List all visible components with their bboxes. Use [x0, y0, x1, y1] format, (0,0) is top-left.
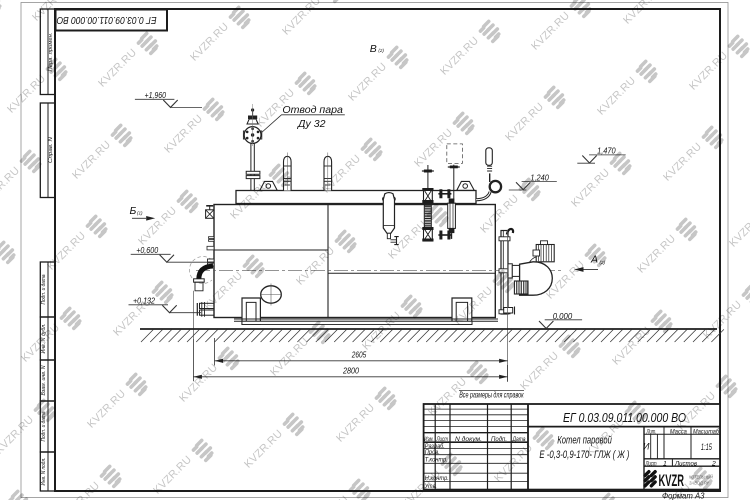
svg-text:2: 2 — [711, 460, 716, 467]
svg-text:Б: Б — [130, 205, 137, 217]
svg-text:N докум.: N докум. — [455, 435, 482, 443]
svg-text:Взам. инв. N: Взам. инв. N — [41, 365, 47, 396]
svg-text:Листов: Листов — [674, 460, 697, 467]
svg-text:Все размеры для справок: Все размеры для справок — [459, 391, 524, 400]
svg-text:1: 1 — [663, 460, 667, 467]
svg-text:Подп. и дата: Подп. и дата — [41, 275, 47, 305]
svg-text:Лит.: Лит. — [646, 428, 657, 435]
svg-text:Инв. N подл.: Инв. N подл. — [41, 458, 47, 486]
svg-text:1:15: 1:15 — [701, 442, 713, 452]
svg-text:ЕГ 0.03.09.011.00.000 ВО: ЕГ 0.03.09.011.00.000 ВО — [56, 14, 156, 25]
svg-text:(2): (2) — [378, 48, 384, 53]
svg-text:Пров.: Пров. — [425, 449, 440, 456]
svg-text:2605: 2605 — [351, 350, 367, 359]
svg-text:1,240: 1,240 — [530, 173, 549, 182]
svg-text:В: В — [370, 43, 377, 55]
svg-text:1,470: 1,470 — [597, 147, 616, 156]
svg-text:+1,960: +1,960 — [145, 91, 167, 100]
svg-text:Справ. N: Справ. N — [48, 136, 54, 163]
svg-text:+0,600: +0,600 — [136, 246, 158, 255]
svg-text:Лист: Лист — [645, 460, 657, 467]
svg-text:И: И — [643, 442, 650, 452]
svg-text:(1): (1) — [137, 211, 143, 216]
svg-text:Дата: Дата — [512, 436, 526, 443]
svg-text:Масштаб: Масштаб — [693, 427, 720, 435]
svg-text:Подп.: Подп. — [491, 435, 507, 443]
svg-text:Ду 32: Ду 32 — [297, 118, 326, 130]
svg-text:Отвод пара: Отвод пара — [282, 104, 343, 116]
svg-text:2800: 2800 — [342, 366, 359, 375]
